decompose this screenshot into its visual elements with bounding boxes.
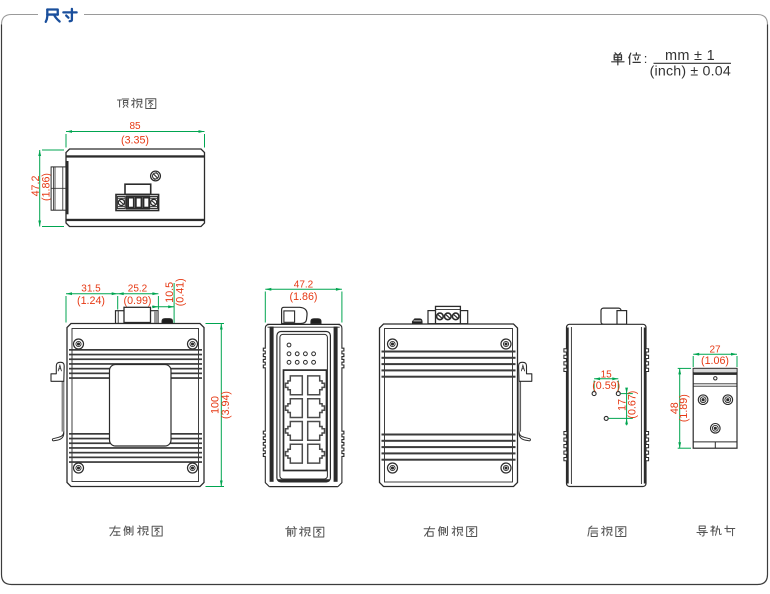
svg-text:27: 27 — [709, 345, 721, 356]
svg-text:47.2: 47.2 — [294, 280, 314, 291]
svg-text:85: 85 — [129, 121, 141, 132]
svg-text::: : — [644, 51, 648, 66]
svg-text:(0.41): (0.41) — [175, 278, 187, 306]
svg-text:(0.99): (0.99) — [124, 295, 152, 307]
svg-text:31.5: 31.5 — [81, 283, 101, 294]
svg-text:(1.86): (1.86) — [40, 173, 52, 201]
svg-text:(3.94): (3.94) — [220, 391, 232, 419]
svg-text:(3.35): (3.35) — [121, 135, 149, 147]
svg-text:25.2: 25.2 — [128, 283, 148, 294]
svg-text:(0.67): (0.67) — [627, 391, 639, 419]
svg-text:(1.89): (1.89) — [678, 394, 690, 422]
svg-text:(1.06): (1.06) — [701, 355, 729, 367]
svg-text:(1.86): (1.86) — [290, 291, 318, 303]
svg-text:mm ± 1: mm ± 1 — [665, 48, 715, 64]
svg-text:15: 15 — [601, 369, 613, 380]
svg-text:(0.59): (0.59) — [592, 380, 620, 392]
svg-text:(inch) ± 0.04: (inch) ± 0.04 — [650, 63, 731, 79]
svg-text:(1.24): (1.24) — [77, 295, 105, 307]
